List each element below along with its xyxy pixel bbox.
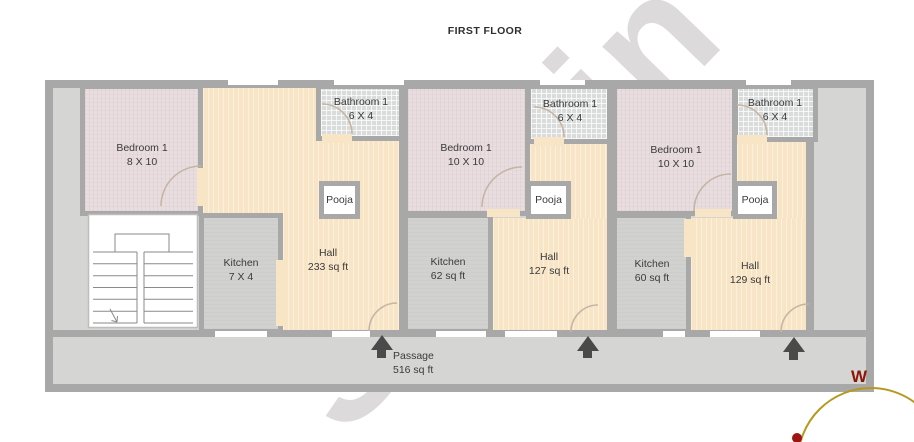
room-name: Bathroom 1 [334, 96, 388, 108]
room-label-kitchen-3: Kitchen 60 sq ft [612, 258, 692, 285]
room-size: 6 X 4 [763, 111, 788, 123]
room-size: 6 X 4 [349, 110, 374, 122]
compass [792, 388, 914, 442]
room-name: Passage [393, 350, 434, 362]
door-arcs [161, 104, 809, 332]
room-label-bathroom-2: Bathroom 1 6 X 4 [520, 98, 620, 125]
compass-west-label: W [851, 367, 867, 387]
room-name: Kitchen [223, 257, 258, 269]
room-name: Hall [540, 251, 558, 263]
room-name: Bathroom 1 [543, 98, 597, 110]
room-label-bathroom-3: Bathroom 1 6 X 4 [725, 97, 825, 124]
up-arrow-icon [783, 337, 805, 360]
room-size: 127 sq ft [529, 265, 569, 277]
room-label-bedroom-1: Bedroom 1 8 X 10 [82, 142, 202, 169]
room-label-bathroom-1: Bathroom 1 6 X 4 [311, 96, 411, 123]
room-name: Hall [741, 260, 759, 272]
room-size: 10 X 10 [658, 158, 694, 170]
room-name: Hall [319, 247, 337, 259]
room-size: 60 sq ft [635, 272, 669, 284]
staircase [89, 215, 198, 328]
room-size: 6 X 4 [558, 112, 583, 124]
room-label-hall-1: Hall 233 sq ft [278, 247, 378, 274]
room-label-kitchen-1: Kitchen 7 X 4 [201, 257, 281, 284]
floor-plan-page: FIRST FLOOR Settlin Pooja Pooja Pooja [0, 0, 914, 442]
compass-dot [792, 433, 802, 442]
room-name: Bedroom 1 [116, 142, 167, 154]
room-size: 62 sq ft [431, 270, 465, 282]
room-size: 233 sq ft [308, 261, 348, 273]
room-size: 10 X 10 [448, 156, 484, 168]
room-size: 516 sq ft [393, 364, 433, 376]
room-label-bedroom-3: Bedroom 1 10 X 10 [616, 144, 736, 171]
room-name: Bedroom 1 [440, 142, 491, 154]
passage-label: Passage 516 sq ft [393, 350, 483, 377]
room-label-kitchen-2: Kitchen 62 sq ft [408, 256, 488, 283]
room-name: Bathroom 1 [748, 97, 802, 109]
room-label-bedroom-2: Bedroom 1 10 X 10 [406, 142, 526, 169]
room-size: 129 sq ft [730, 274, 770, 286]
room-size: 8 X 10 [127, 156, 157, 168]
room-label-hall-3: Hall 129 sq ft [700, 260, 800, 287]
room-name: Kitchen [634, 258, 669, 270]
up-arrow-icon [371, 335, 393, 358]
room-name: Kitchen [430, 256, 465, 268]
compass-arc [798, 388, 914, 442]
room-label-hall-2: Hall 127 sq ft [499, 251, 599, 278]
room-size: 7 X 4 [229, 271, 254, 283]
up-arrow-icon [577, 336, 599, 358]
room-name: Bedroom 1 [650, 144, 701, 156]
